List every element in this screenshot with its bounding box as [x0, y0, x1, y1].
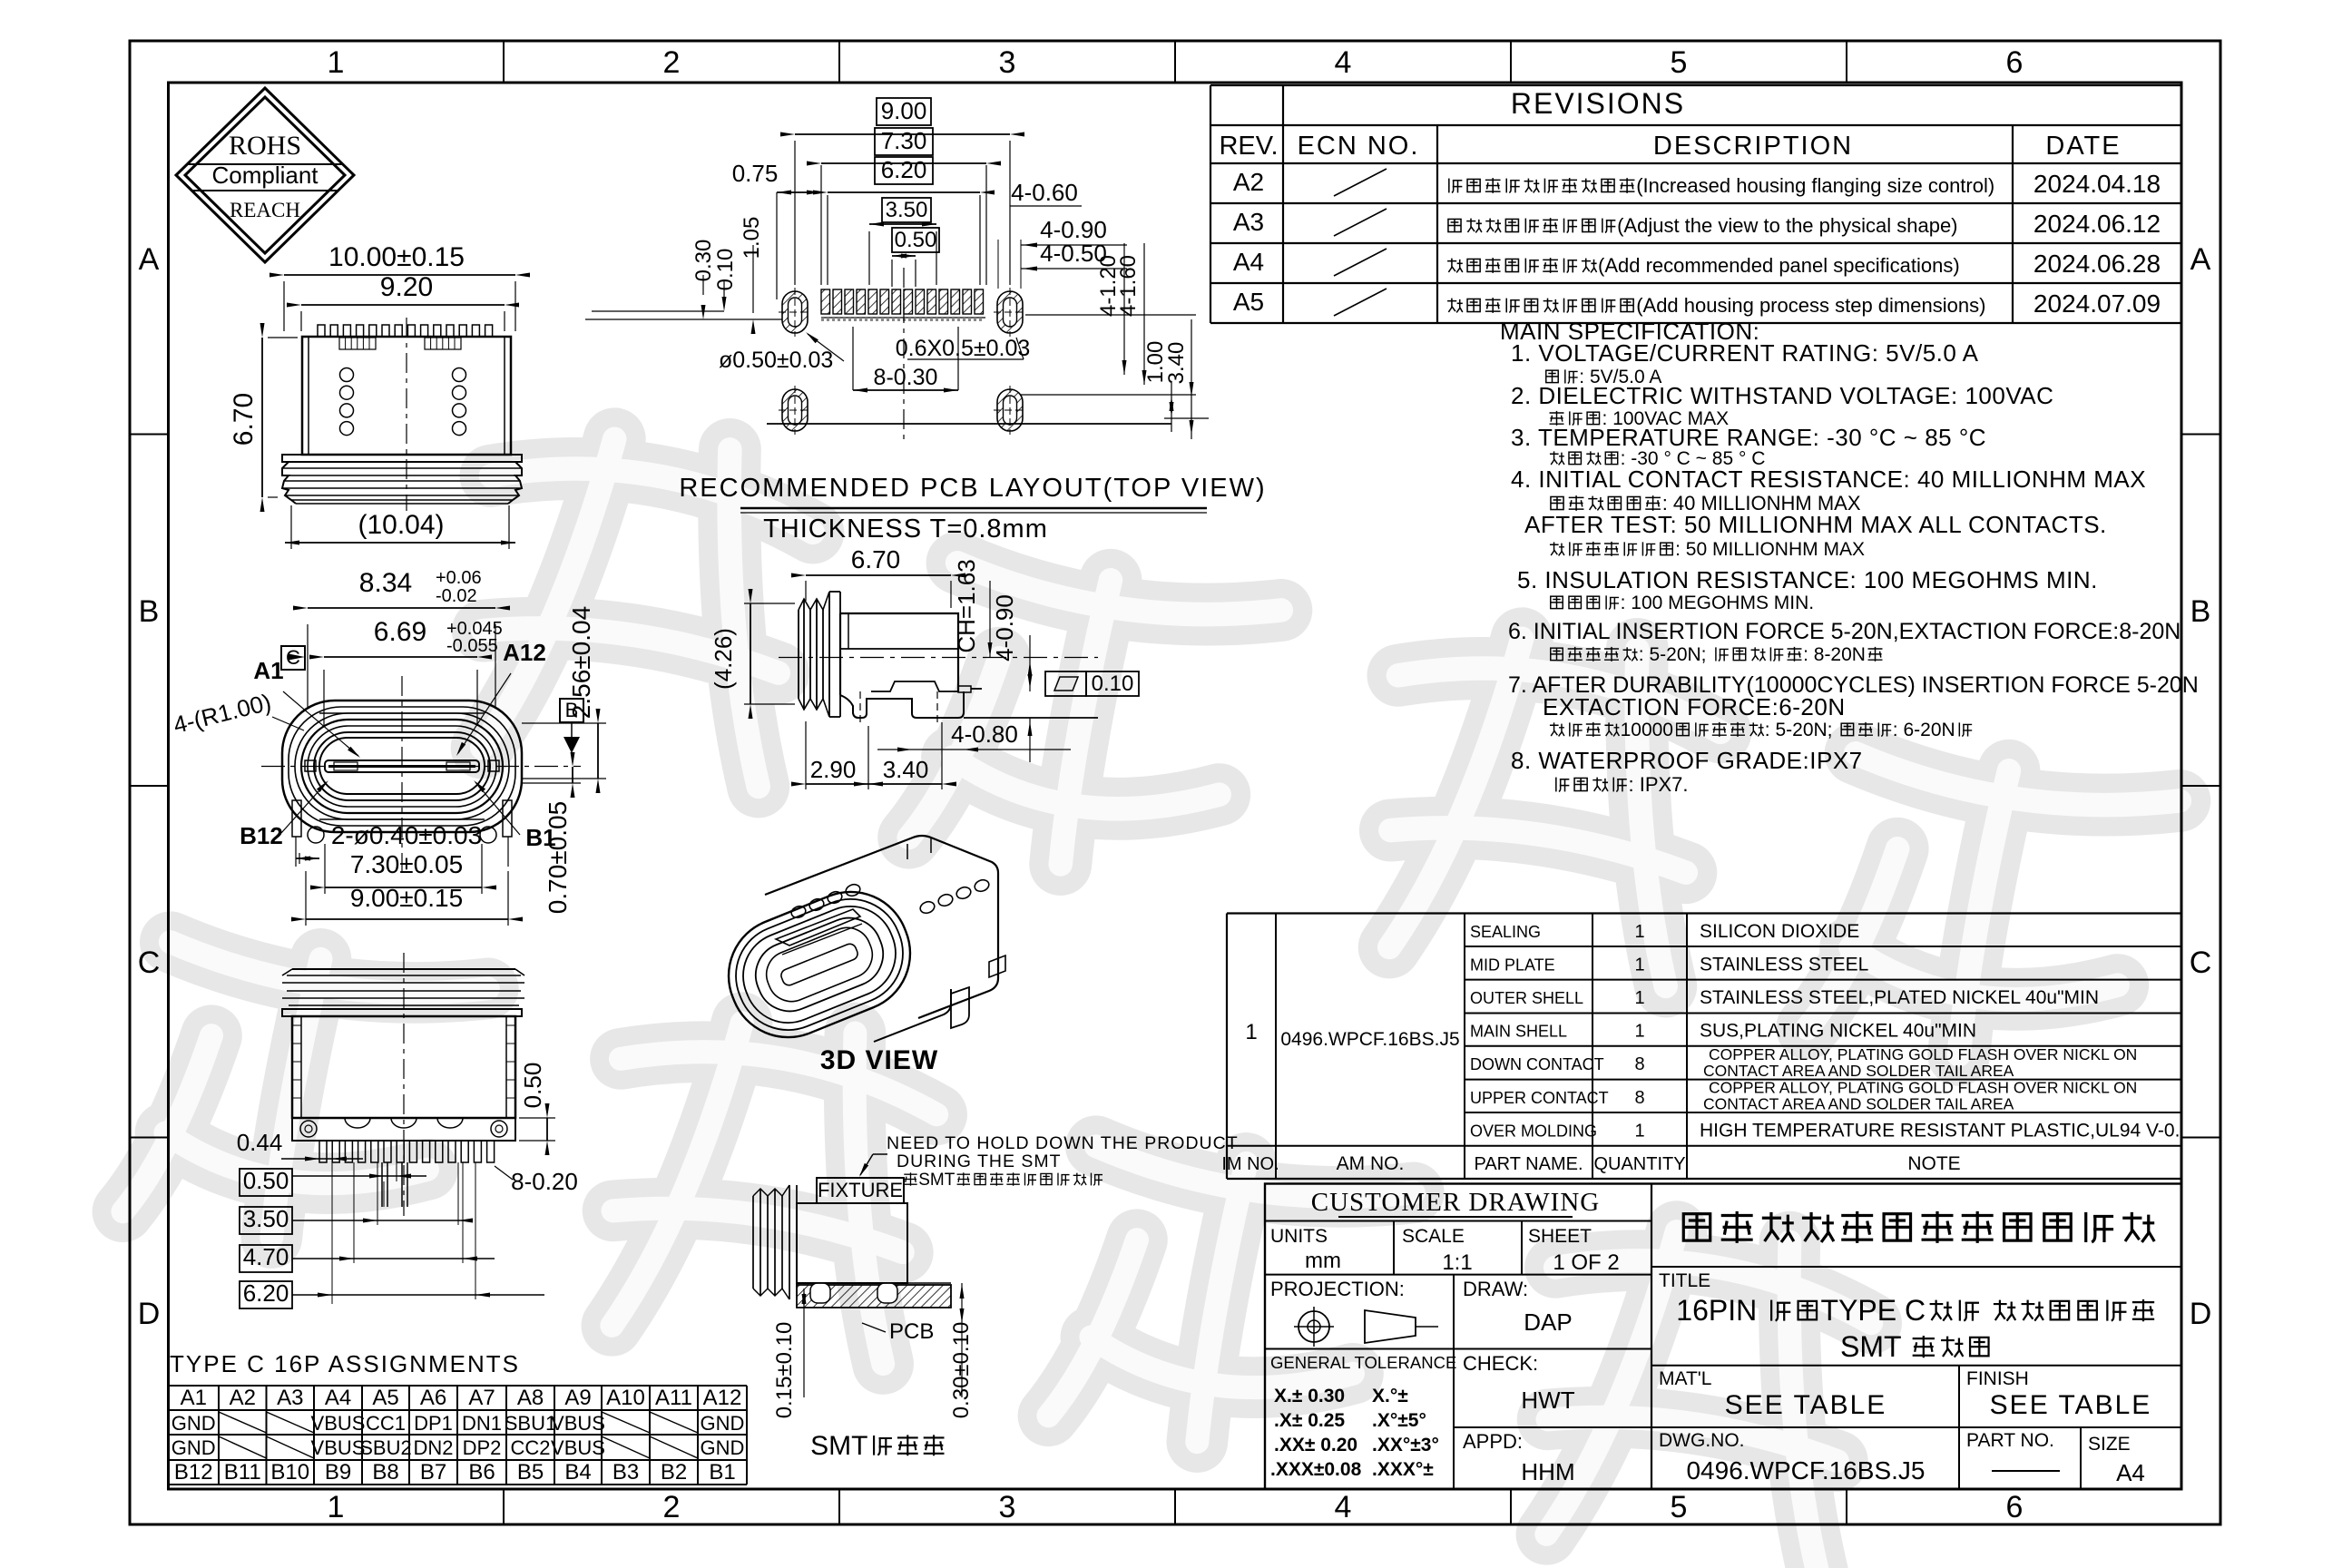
svg-text:3: 3	[999, 1490, 1016, 1524]
svg-text:DAP: DAP	[1524, 1308, 1572, 1336]
svg-text:A8: A8	[517, 1386, 544, 1410]
svg-text:4: 4	[1335, 45, 1352, 80]
svg-text:1:1: 1:1	[1442, 1250, 1472, 1275]
svg-text:Compliant: Compliant	[211, 162, 318, 189]
svg-text:A1: A1	[253, 657, 283, 684]
svg-text:3: 3	[999, 45, 1016, 80]
svg-text:4-0.80: 4-0.80	[951, 720, 1018, 748]
svg-text:5: 5	[1671, 45, 1688, 80]
svg-text:(Add housing process step dime: (Add housing process step dimensions)	[1636, 294, 1985, 317]
svg-text:A1: A1	[181, 1386, 207, 1410]
svg-text:DP1: DP1	[414, 1412, 453, 1435]
svg-text:A5: A5	[372, 1386, 398, 1410]
svg-text:AM NO.: AM NO.	[1337, 1153, 1405, 1174]
svg-text:TITLE: TITLE	[1659, 1270, 1710, 1291]
svg-text:: 50 MILLIONHM MAX: : 50 MILLIONHM MAX	[1675, 539, 1865, 560]
svg-text:4-1.60: 4-1.60	[1116, 255, 1141, 317]
svg-text:SMT: SMT	[918, 1171, 955, 1190]
svg-text:A6: A6	[420, 1386, 446, 1410]
svg-text:CUSTOMER DRAWING: CUSTOMER DRAWING	[1311, 1188, 1600, 1217]
svg-text:mm: mm	[1305, 1249, 1341, 1273]
svg-text:2.90: 2.90	[810, 756, 857, 783]
svg-text:DP2: DP2	[463, 1436, 502, 1459]
svg-text:2: 2	[663, 1490, 681, 1524]
svg-text:10.00±0.15: 10.00±0.15	[328, 242, 465, 272]
svg-text:(10.04): (10.04)	[358, 510, 444, 540]
svg-text:SEALING: SEALING	[1470, 923, 1541, 941]
svg-text:8: 8	[1634, 1088, 1644, 1108]
svg-text:0496.WPCF.16BS.J5: 0496.WPCF.16BS.J5	[1686, 1456, 1925, 1485]
svg-text:VBUS: VBUS	[311, 1436, 366, 1459]
svg-text:8-0.20: 8-0.20	[511, 1168, 578, 1195]
svg-text:0.50: 0.50	[519, 1063, 546, 1109]
svg-text:ø0.50±0.03: ø0.50±0.03	[719, 348, 833, 373]
svg-text:B: B	[2190, 594, 2211, 629]
svg-text:SHEET: SHEET	[1528, 1226, 1592, 1247]
svg-text:D: D	[138, 1297, 161, 1331]
svg-text:A2: A2	[1233, 168, 1264, 196]
svg-text:6.20: 6.20	[243, 1279, 289, 1307]
svg-text:1. VOLTAGE/CURRENT RATING: 5V/: 1. VOLTAGE/CURRENT RATING: 5V/5.0 A	[1511, 339, 1979, 367]
svg-text:SBU1: SBU1	[505, 1412, 556, 1435]
svg-text:.XX± 0.20: .XX± 0.20	[1274, 1435, 1357, 1455]
svg-text:B2: B2	[661, 1460, 687, 1485]
svg-text:0.15±0.10: 0.15±0.10	[772, 1322, 797, 1419]
svg-text:2. DIELECTRIC WITHSTAND VOLTAG: 2. DIELECTRIC WITHSTAND VOLTAGE: 100VAC	[1511, 382, 2053, 409]
svg-text:X.°±: X.°±	[1372, 1386, 1408, 1406]
svg-text:0.6X0.5±0.03: 0.6X0.5±0.03	[896, 336, 1031, 361]
svg-text:9.20: 9.20	[380, 272, 433, 302]
svg-text:1: 1	[1634, 922, 1644, 942]
svg-text:0.50: 0.50	[243, 1167, 289, 1194]
svg-text:VBUS: VBUS	[551, 1436, 605, 1459]
svg-text:(4.26): (4.26)	[710, 628, 737, 690]
svg-text:4. INITIAL CONTACT RESISTANCE:: 4. INITIAL CONTACT RESISTANCE: 40 MILLIO…	[1511, 465, 2146, 493]
svg-text:1: 1	[328, 45, 345, 80]
svg-text:1.05: 1.05	[740, 217, 764, 260]
svg-text:2024.07.09: 2024.07.09	[2033, 289, 2161, 318]
svg-text:B8: B8	[372, 1460, 398, 1485]
svg-text:FINISH: FINISH	[1966, 1368, 2029, 1389]
svg-text:.X°±5°: .X°±5°	[1372, 1410, 1426, 1431]
svg-text:TYPE C: TYPE C	[1821, 1294, 1926, 1327]
svg-text:CH=1.63: CH=1.63	[953, 559, 980, 652]
svg-text:1 OF 2: 1 OF 2	[1553, 1250, 1619, 1275]
svg-text:1: 1	[1634, 1022, 1644, 1042]
svg-text:(Add recommended panel specifi: (Add recommended panel specifications)	[1598, 254, 1960, 277]
svg-text:CONTACT AREA AND SOLDER TAIL A: CONTACT AREA AND SOLDER TAIL AREA	[1703, 1095, 2014, 1113]
svg-text:1: 1	[328, 1490, 345, 1524]
svg-text:MAT'L: MAT'L	[1659, 1368, 1711, 1389]
svg-text:3.50: 3.50	[886, 198, 928, 222]
svg-text:8.34: 8.34	[359, 568, 412, 598]
svg-text:1: 1	[1245, 1020, 1257, 1044]
svg-text:: 100 MEGOHMS MIN.: : 100 MEGOHMS MIN.	[1621, 593, 1815, 613]
svg-text:0.50: 0.50	[895, 228, 937, 252]
svg-text:SCALE: SCALE	[1402, 1226, 1465, 1247]
svg-text:QUANTITY: QUANTITY	[1593, 1154, 1685, 1174]
svg-text:C: C	[2190, 946, 2212, 980]
svg-text:GND: GND	[171, 1436, 216, 1459]
svg-text:A5: A5	[1233, 288, 1264, 316]
svg-text:NOTE: NOTE	[1907, 1153, 1960, 1174]
svg-text:4-0.60: 4-0.60	[1011, 179, 1078, 206]
svg-text:THICKNESS T=0.8mm: THICKNESS T=0.8mm	[763, 514, 1048, 544]
svg-text:: 6-20N: : 6-20N	[1893, 720, 1955, 740]
svg-text:0.44: 0.44	[237, 1129, 283, 1156]
svg-text:DRAW:: DRAW:	[1463, 1278, 1528, 1300]
svg-text:A3: A3	[1233, 208, 1264, 236]
svg-text:A4: A4	[2116, 1459, 2145, 1486]
svg-text:SEE TABLE: SEE TABLE	[1725, 1390, 1887, 1420]
svg-text:3.40: 3.40	[1164, 342, 1189, 385]
svg-text:A: A	[2190, 242, 2211, 277]
svg-text:10000: 10000	[1621, 720, 1673, 740]
svg-text:+0.06: +0.06	[436, 568, 482, 588]
svg-text:2: 2	[663, 45, 681, 80]
svg-text:6.70: 6.70	[851, 545, 901, 573]
svg-text:A2: A2	[230, 1386, 256, 1410]
svg-text:9.00±0.15: 9.00±0.15	[350, 884, 463, 912]
svg-text:B7: B7	[420, 1460, 446, 1485]
svg-text:16PIN: 16PIN	[1676, 1294, 1757, 1327]
svg-text:B: B	[565, 699, 579, 721]
svg-text:B3: B3	[612, 1460, 639, 1485]
svg-text:HWT: HWT	[1521, 1387, 1574, 1414]
svg-text:0.70±0.05: 0.70±0.05	[544, 801, 572, 914]
svg-text:7.30±0.05: 7.30±0.05	[350, 850, 463, 878]
svg-text:1: 1	[1634, 955, 1644, 975]
svg-text:C: C	[138, 946, 161, 980]
svg-text:8-0.30: 8-0.30	[874, 365, 938, 390]
svg-text:DOWN CONTACT: DOWN CONTACT	[1470, 1055, 1604, 1073]
svg-text:9.00: 9.00	[881, 97, 927, 124]
svg-text:6: 6	[2006, 45, 2024, 80]
svg-text:B9: B9	[325, 1460, 351, 1485]
svg-text:REV.: REV.	[1219, 132, 1278, 161]
svg-text:HIGH TEMPERATURE RESISTANT PLA: HIGH TEMPERATURE RESISTANT PLASTIC,UL94 …	[1700, 1120, 2180, 1141]
svg-text:A: A	[139, 242, 160, 277]
svg-text:: 8-20N: : 8-20N	[1803, 644, 1866, 665]
svg-text:PROJECTION:: PROJECTION:	[1270, 1278, 1405, 1300]
svg-text:7.30: 7.30	[881, 127, 927, 154]
svg-text:5: 5	[1671, 1490, 1688, 1524]
svg-text:3D VIEW: 3D VIEW	[820, 1045, 938, 1075]
svg-text:B12: B12	[174, 1460, 213, 1485]
svg-text:B11: B11	[224, 1460, 261, 1485]
svg-text:B4: B4	[564, 1460, 591, 1485]
svg-text:-0.02: -0.02	[436, 586, 477, 606]
svg-text:0.10: 0.10	[1092, 671, 1134, 696]
svg-text:FIXTURE: FIXTURE	[818, 1179, 903, 1201]
svg-text:CHECK:: CHECK:	[1463, 1352, 1538, 1375]
svg-text:VBUS: VBUS	[551, 1412, 605, 1435]
svg-text:GENERAL TOLERANCE: GENERAL TOLERANCE	[1270, 1353, 1456, 1372]
svg-text:DWG.NO.: DWG.NO.	[1659, 1430, 1745, 1451]
svg-text:TYPE C 16P ASSIGNMENTS: TYPE C 16P ASSIGNMENTS	[170, 1350, 520, 1377]
svg-text:0.75: 0.75	[732, 160, 779, 187]
svg-text:UNITS: UNITS	[1270, 1226, 1328, 1247]
svg-text:GND: GND	[701, 1412, 745, 1435]
svg-text:STAINLESS STEEL: STAINLESS STEEL	[1700, 954, 1868, 975]
svg-text:4: 4	[1335, 1490, 1352, 1524]
svg-text:IM NO.: IM NO.	[1221, 1154, 1279, 1174]
svg-text:PART NO.: PART NO.	[1966, 1430, 2054, 1451]
svg-text:SUS,PLATING NICKEL 40u"MIN: SUS,PLATING NICKEL 40u"MIN	[1700, 1021, 1976, 1042]
svg-text:8: 8	[1634, 1054, 1644, 1074]
svg-text:1: 1	[1634, 988, 1644, 1008]
svg-text:SMT: SMT	[810, 1431, 867, 1461]
svg-text:(Adjust the view to the physic: (Adjust the view to the physical shape)	[1617, 214, 1957, 237]
svg-text:6.69: 6.69	[374, 617, 426, 647]
svg-text:-0.055: -0.055	[446, 636, 498, 656]
svg-text:.XXX°±: .XXX°±	[1372, 1459, 1434, 1480]
svg-text:: 5-20N;: : 5-20N;	[1639, 644, 1707, 665]
svg-text:COPPER ALLOY, PLATING GOLD FLA: COPPER ALLOY, PLATING GOLD FLASH OVER NI…	[1709, 1079, 2137, 1097]
svg-text:UPPER CONTACT: UPPER CONTACT	[1470, 1089, 1609, 1107]
svg-text:SBU2: SBU2	[359, 1436, 411, 1459]
svg-text:B10: B10	[270, 1460, 309, 1485]
svg-text:DN2: DN2	[413, 1436, 453, 1459]
svg-text:ECN NO.: ECN NO.	[1298, 132, 1420, 161]
svg-text:A3: A3	[277, 1386, 303, 1410]
svg-text:PART NAME.: PART NAME.	[1474, 1154, 1583, 1174]
svg-text:B12: B12	[240, 822, 283, 849]
svg-text:1: 1	[1634, 1121, 1644, 1141]
svg-text:REVISIONS: REVISIONS	[1511, 87, 1685, 120]
svg-text:.XXX±0.08: .XXX±0.08	[1270, 1459, 1362, 1480]
svg-text:B: B	[139, 594, 160, 629]
svg-text:OUTER SHELL: OUTER SHELL	[1470, 989, 1583, 1007]
svg-text:PCB: PCB	[889, 1319, 934, 1344]
svg-text:A11: A11	[655, 1386, 692, 1410]
svg-text:DN1: DN1	[462, 1412, 502, 1435]
svg-text:X.± 0.30: X.± 0.30	[1274, 1386, 1345, 1406]
svg-text:.XX°±3°: .XX°±3°	[1372, 1435, 1439, 1455]
svg-text:6. INITIAL INSERTION FORCE 5-2: 6. INITIAL INSERTION FORCE 5-20N,EXTACTI…	[1508, 619, 2180, 644]
svg-text:4.70: 4.70	[243, 1243, 289, 1270]
svg-text:6.20: 6.20	[881, 156, 927, 183]
svg-text:GND: GND	[171, 1412, 216, 1435]
svg-text:DURING THE SMT: DURING THE SMT	[897, 1151, 1062, 1171]
svg-text:ROHS: ROHS	[229, 131, 301, 161]
svg-text:CC1: CC1	[366, 1412, 406, 1435]
svg-text:A4: A4	[325, 1386, 351, 1410]
svg-text:B5: B5	[517, 1460, 544, 1485]
svg-text:NEED TO HOLD DOWN THE PRODUCT: NEED TO HOLD DOWN THE PRODUCT	[887, 1133, 1239, 1153]
svg-text:0496.WPCF.16BS.J5: 0496.WPCF.16BS.J5	[1280, 1029, 1459, 1050]
svg-text:6.70: 6.70	[229, 393, 259, 446]
svg-text:B6: B6	[468, 1460, 495, 1485]
svg-text:SILICON DIOXIDE: SILICON DIOXIDE	[1700, 921, 1859, 942]
svg-text:EXTACTION FORCE:6-20N: EXTACTION FORCE:6-20N	[1543, 693, 1846, 720]
svg-text:CC2: CC2	[510, 1436, 550, 1459]
svg-text:2024.06.28: 2024.06.28	[2033, 250, 2161, 278]
svg-text:3. TEMPERATURE RANGE: -30 °C ~: 3. TEMPERATURE RANGE: -30 °C ~ 85 °C	[1511, 424, 1986, 451]
svg-text:: 5-20N;: : 5-20N;	[1765, 720, 1833, 740]
svg-text:MID PLATE: MID PLATE	[1470, 955, 1555, 974]
svg-text:APPD:: APPD:	[1463, 1430, 1523, 1453]
svg-text:A12: A12	[503, 639, 546, 666]
svg-text:GND: GND	[701, 1436, 745, 1459]
svg-text:DATE: DATE	[2045, 132, 2121, 161]
svg-text:HHM: HHM	[1521, 1458, 1574, 1485]
svg-text:AFTER TEST: 50 MILLIONHM MAX A: AFTER TEST: 50 MILLIONHM MAX ALL CONTACT…	[1524, 511, 2107, 538]
svg-text:4-0.90: 4-0.90	[991, 594, 1018, 661]
svg-text:A9: A9	[564, 1386, 591, 1410]
svg-text:RECOMMENDED PCB LAYOUT(TOP VIE: RECOMMENDED PCB LAYOUT(TOP VIEW)	[679, 474, 1266, 503]
svg-text:3.50: 3.50	[243, 1205, 289, 1232]
svg-text:.X± 0.25: .X± 0.25	[1274, 1410, 1345, 1431]
svg-text:STAINLESS STEEL,PLATED NICKEL: STAINLESS STEEL,PLATED NICKEL 40u"MIN	[1700, 987, 2099, 1008]
svg-text:D: D	[2190, 1297, 2212, 1331]
svg-text:CONTACT AREA AND SOLDER TAIL A: CONTACT AREA AND SOLDER TAIL AREA	[1703, 1062, 2014, 1080]
svg-text:VBUS: VBUS	[311, 1412, 366, 1435]
svg-text:6: 6	[2006, 1490, 2024, 1524]
svg-text:8. WATERPROOF GRADE:IPX7: 8. WATERPROOF GRADE:IPX7	[1511, 747, 1863, 774]
svg-text:0.10: 0.10	[713, 249, 738, 291]
svg-text:B1: B1	[709, 1460, 735, 1485]
svg-text:REACH: REACH	[230, 199, 300, 221]
svg-text:A12: A12	[703, 1386, 742, 1410]
svg-text:A7: A7	[468, 1386, 495, 1410]
svg-text:SMT: SMT	[1840, 1330, 1902, 1363]
svg-text:(Increased housing flanging si: (Increased housing flanging size control…	[1636, 174, 1994, 197]
svg-text:2024.04.18: 2024.04.18	[2033, 170, 2161, 198]
svg-text:A4: A4	[1233, 248, 1264, 276]
svg-text:: IPX7.: : IPX7.	[1629, 773, 1689, 796]
svg-text:A10: A10	[606, 1386, 645, 1410]
svg-text:5. INSULATION RESISTANCE: 100: 5. INSULATION RESISTANCE: 100 MEGOHMS MI…	[1517, 566, 2098, 593]
svg-text:DESCRIPTION: DESCRIPTION	[1653, 132, 1853, 161]
svg-text:COPPER ALLOY, PLATING GOLD FLA: COPPER ALLOY, PLATING GOLD FLASH OVER NI…	[1709, 1045, 2137, 1063]
svg-text:SIZE: SIZE	[2088, 1434, 2131, 1455]
svg-text:2-ø0.40±0.03: 2-ø0.40±0.03	[331, 821, 482, 849]
svg-text:2024.06.12: 2024.06.12	[2033, 210, 2161, 238]
svg-text:3.40: 3.40	[883, 756, 929, 783]
svg-text:MAIN SHELL: MAIN SHELL	[1470, 1023, 1567, 1041]
svg-text:OVER MOLDING: OVER MOLDING	[1470, 1122, 1597, 1140]
svg-text:SEE TABLE: SEE TABLE	[1990, 1390, 2152, 1420]
